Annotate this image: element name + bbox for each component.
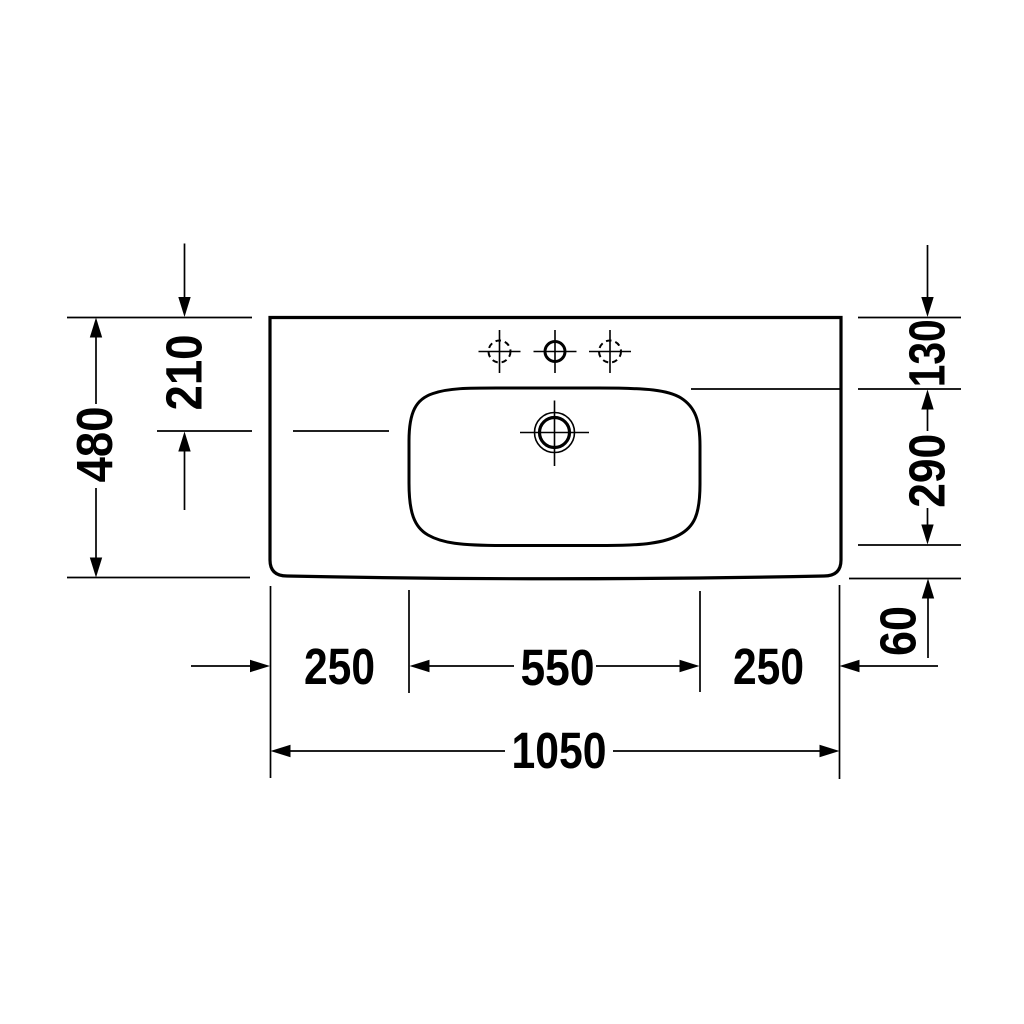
svg-text:550: 550 <box>521 639 595 696</box>
svg-text:480: 480 <box>66 407 123 483</box>
svg-text:210: 210 <box>156 335 213 411</box>
svg-text:130: 130 <box>899 319 956 387</box>
svg-text:250: 250 <box>733 638 804 695</box>
svg-text:60: 60 <box>870 606 927 656</box>
svg-text:290: 290 <box>899 434 956 508</box>
svg-text:250: 250 <box>304 638 375 695</box>
svg-text:1050: 1050 <box>512 722 607 779</box>
